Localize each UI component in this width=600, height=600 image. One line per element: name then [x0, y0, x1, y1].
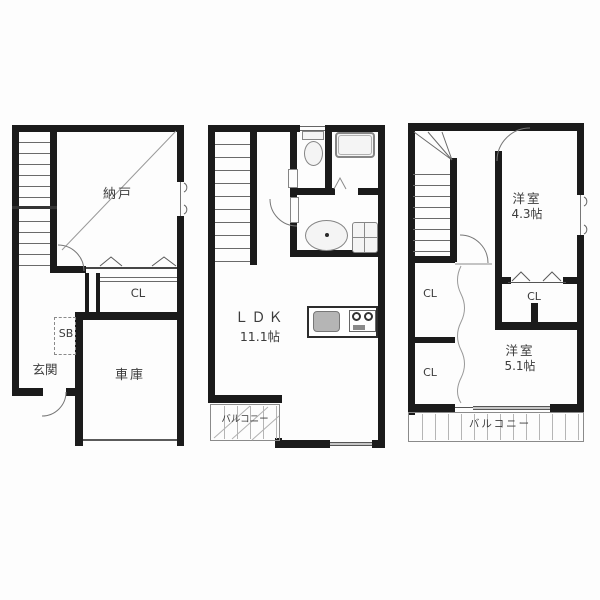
room-label-closet-hall-upper: CL [412, 288, 448, 300]
storage-door-arc [58, 245, 84, 271]
room-label-entrance: 玄関 [20, 363, 70, 376]
symbol-group [42, 128, 587, 440]
room-label-shoebox: SB [52, 328, 80, 340]
closet-1f-door-mark-left [100, 257, 122, 266]
washroom-door-arc [270, 199, 297, 226]
bath-folding-door-mark [334, 178, 346, 189]
floorplan-canvas: 納戸 CL SB 玄関 車庫 ＬＤＫ 11.1帖 バルコニー 洋室 4.3帖 C… [0, 0, 600, 600]
room-label-closet-1f: CL [118, 287, 158, 299]
room-label-closet-room: CL [516, 291, 552, 303]
closet-accordion-line [458, 266, 465, 403]
room-label-room-lower-size: 5.1帖 [488, 360, 552, 373]
closet-3f-door-mark-right [543, 272, 561, 281]
room-label-balcony-2f: バルコニー [211, 415, 279, 425]
hall-door-arc [460, 235, 488, 263]
room-upper-door-arc [497, 128, 530, 161]
room-label-ldk: ＬＤＫ [222, 311, 298, 326]
room-label-garage: 車庫 [98, 369, 162, 383]
window-3f-tab-upper [584, 197, 587, 206]
window-1f-tab-upper [184, 183, 187, 192]
window-3f-tab-lower [584, 225, 587, 234]
room-label-storage: 納戸 [88, 188, 148, 202]
symbol-overlay [0, 0, 600, 600]
closet-1f-door-mark-right [152, 257, 176, 266]
room-label-room-upper-size: 4.3帖 [496, 208, 558, 221]
room-label-ldk-size: 11.1帖 [222, 330, 298, 343]
stairs-3f-winder-lines [414, 132, 452, 160]
window-1f-tab-lower [184, 205, 187, 214]
room-label-closet-hall-lower: CL [412, 367, 448, 379]
room-label-room-lower: 洋室 [488, 344, 552, 357]
entrance-door-arc [42, 392, 66, 416]
closet-3f-door-mark-left [512, 272, 530, 281]
room-label-balcony-3f: バルコニー [440, 419, 560, 430]
room-label-room-upper: 洋室 [496, 192, 558, 205]
